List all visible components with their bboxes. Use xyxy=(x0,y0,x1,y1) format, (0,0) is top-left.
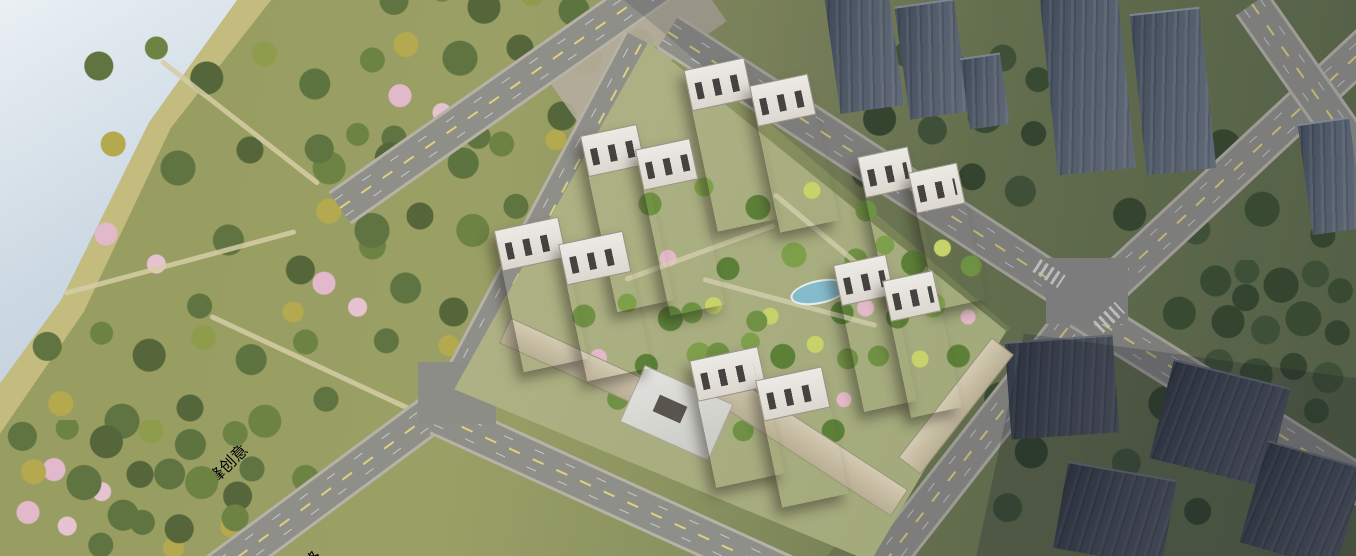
city-building xyxy=(824,0,904,114)
city-building xyxy=(1005,334,1120,439)
aerial-masterplan: 先锋创意 华泰路 庆喜路 祥泰路 迎福街 1# 31F 4# 22F 7# 31… xyxy=(0,0,1356,556)
